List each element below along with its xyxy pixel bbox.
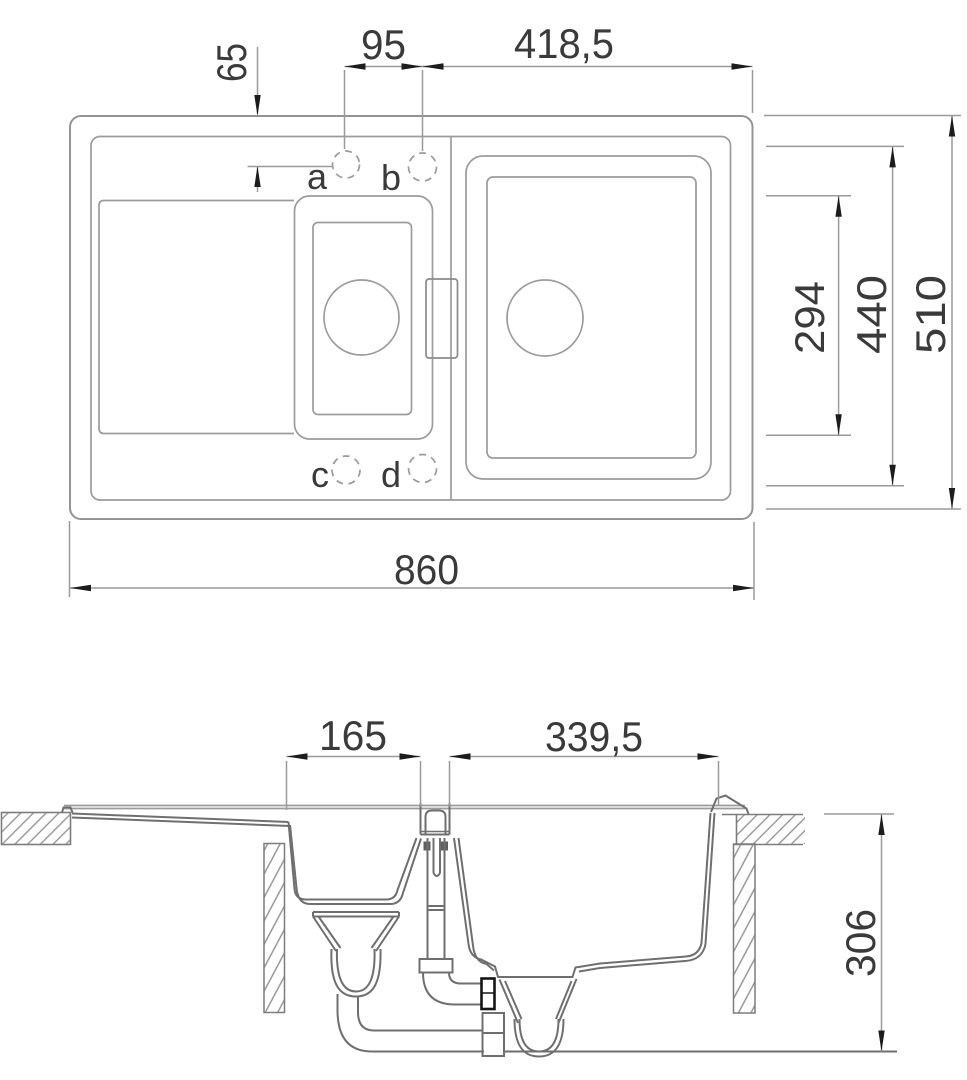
- svg-text:860: 860: [394, 546, 459, 593]
- svg-text:440: 440: [848, 275, 895, 354]
- svg-text:165: 165: [319, 712, 387, 759]
- svg-text:95: 95: [361, 21, 406, 68]
- svg-text:339,5: 339,5: [545, 713, 643, 760]
- svg-text:d: d: [381, 454, 401, 495]
- svg-text:a: a: [307, 156, 328, 197]
- svg-text:c: c: [311, 454, 329, 495]
- svg-text:b: b: [381, 157, 401, 198]
- svg-text:510: 510: [907, 275, 954, 354]
- svg-text:65: 65: [208, 43, 255, 82]
- svg-text:306: 306: [837, 909, 884, 977]
- svg-text:294: 294: [786, 281, 833, 354]
- svg-text:418,5: 418,5: [514, 20, 614, 67]
